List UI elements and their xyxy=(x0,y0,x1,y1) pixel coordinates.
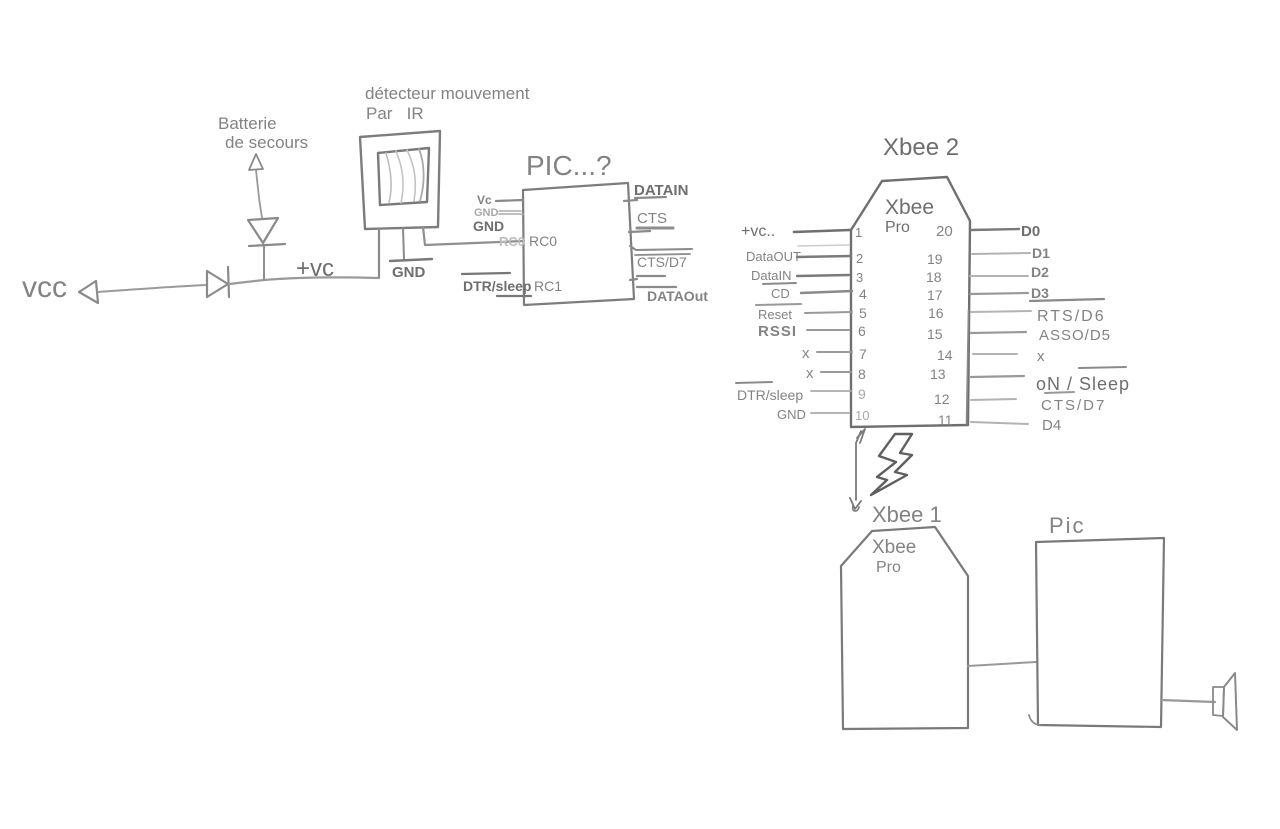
svg-text:16: 16 xyxy=(928,305,944,321)
svg-text:4: 4 xyxy=(859,286,867,302)
svg-text:CTS/D7: CTS/D7 xyxy=(1041,397,1106,414)
svg-text:15: 15 xyxy=(927,326,943,342)
svg-text:RC1: RC1 xyxy=(534,278,562,294)
svg-text:1: 1 xyxy=(855,225,862,240)
svg-text:RC0: RC0 xyxy=(529,233,557,249)
svg-text:2: 2 xyxy=(856,251,863,266)
svg-text:+vc..: +vc.. xyxy=(741,223,775,240)
svg-text:de secours: de secours xyxy=(225,133,308,152)
svg-text:5: 5 xyxy=(859,305,867,321)
svg-text:Xbee 1: Xbee 1 xyxy=(872,502,942,527)
svg-text:DTR/sleep: DTR/sleep xyxy=(463,278,531,294)
svg-text:x: x xyxy=(802,345,810,362)
svg-text:3: 3 xyxy=(856,270,863,285)
svg-text:oN / Sleep: oN / Sleep xyxy=(1036,374,1130,394)
svg-text:détecteur mouvement: détecteur mouvement xyxy=(365,84,530,103)
svg-text:13: 13 xyxy=(930,366,946,382)
svg-text:17: 17 xyxy=(927,287,943,303)
svg-text:PIC...?: PIC...? xyxy=(526,150,612,181)
svg-text:Reset: Reset xyxy=(758,307,792,322)
svg-text:11: 11 xyxy=(938,412,953,428)
svg-text:DTR/sleep: DTR/sleep xyxy=(737,387,803,403)
svg-text:D3: D3 xyxy=(1031,285,1049,301)
svg-text:Pro: Pro xyxy=(876,559,901,576)
svg-text:Pic: Pic xyxy=(1049,513,1086,538)
svg-text:Vc: Vc xyxy=(477,193,492,207)
svg-text:Xbee 2: Xbee 2 xyxy=(883,134,959,161)
svg-text:18: 18 xyxy=(926,269,942,285)
svg-text:vcc: vcc xyxy=(22,271,67,304)
svg-text:RTS/D6: RTS/D6 xyxy=(1037,308,1106,325)
svg-text:Xbee: Xbee xyxy=(872,537,916,558)
svg-text:Par IR: Par IR xyxy=(366,104,424,123)
svg-text:D2: D2 xyxy=(1031,264,1049,280)
svg-text:GND: GND xyxy=(473,218,504,234)
svg-text:x: x xyxy=(1037,348,1045,365)
svg-text:14: 14 xyxy=(937,347,953,363)
svg-text:DataIN: DataIN xyxy=(751,268,791,283)
svg-text:9: 9 xyxy=(858,386,866,402)
svg-text:D0: D0 xyxy=(1021,223,1040,240)
svg-text:12: 12 xyxy=(934,391,950,407)
svg-text:D1: D1 xyxy=(1032,245,1050,261)
svg-text:Xbee: Xbee xyxy=(885,196,934,219)
svg-text:GND: GND xyxy=(777,407,806,422)
svg-text:GND: GND xyxy=(392,264,426,281)
svg-text:ASSO/D5: ASSO/D5 xyxy=(1039,327,1111,344)
svg-text:Batterie: Batterie xyxy=(218,114,277,133)
svg-text:DATAOut: DATAOut xyxy=(647,288,708,304)
svg-text:6: 6 xyxy=(858,323,866,339)
svg-text:CTS: CTS xyxy=(637,210,667,227)
svg-text:DataOUT: DataOUT xyxy=(746,249,801,264)
svg-text:D4: D4 xyxy=(1042,417,1061,434)
svg-text:x: x xyxy=(806,365,814,382)
svg-text:RC0: RC0 xyxy=(499,234,525,249)
svg-text:8: 8 xyxy=(858,366,866,382)
svg-text:RSSI: RSSI xyxy=(758,323,797,340)
svg-text:20: 20 xyxy=(936,223,953,240)
svg-text:+vc: +vc xyxy=(296,255,334,282)
svg-text:CTS/D7: CTS/D7 xyxy=(637,254,687,270)
svg-text:Pro: Pro xyxy=(885,219,910,236)
svg-text:CD: CD xyxy=(771,286,790,301)
svg-text:7: 7 xyxy=(859,346,867,362)
svg-text:10: 10 xyxy=(855,408,869,423)
svg-text:19: 19 xyxy=(927,251,943,267)
